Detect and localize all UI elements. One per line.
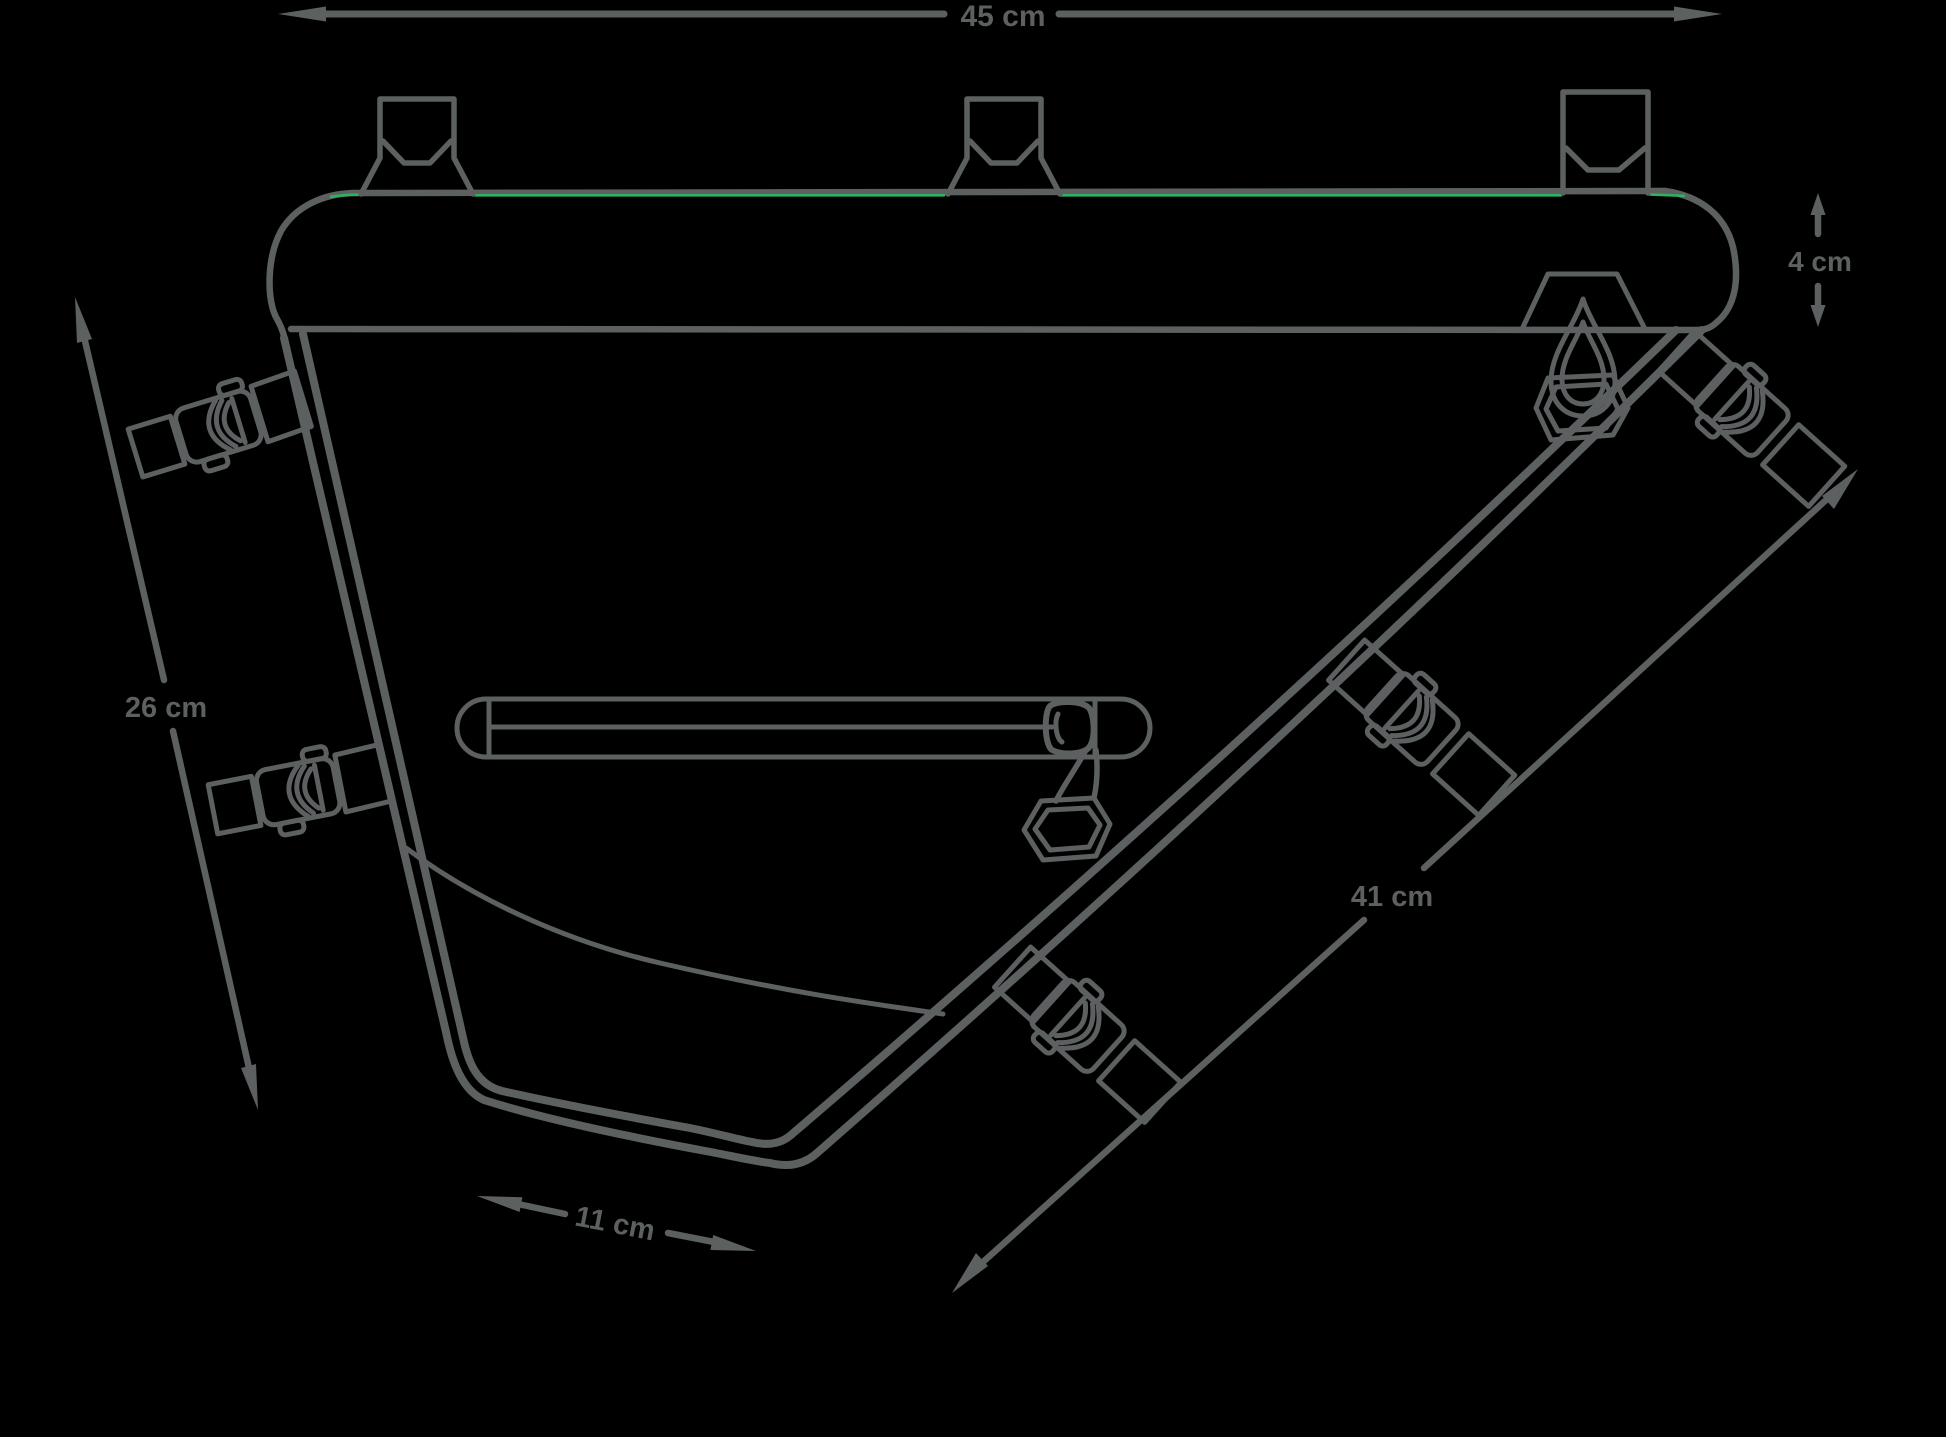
svg-text:26 cm: 26 cm: [125, 692, 207, 724]
svg-text:45 cm: 45 cm: [960, 0, 1045, 33]
svg-text:4 cm: 4 cm: [1788, 246, 1852, 277]
svg-text:11 cm: 11 cm: [572, 1201, 657, 1248]
svg-text:41 cm: 41 cm: [1351, 881, 1433, 913]
